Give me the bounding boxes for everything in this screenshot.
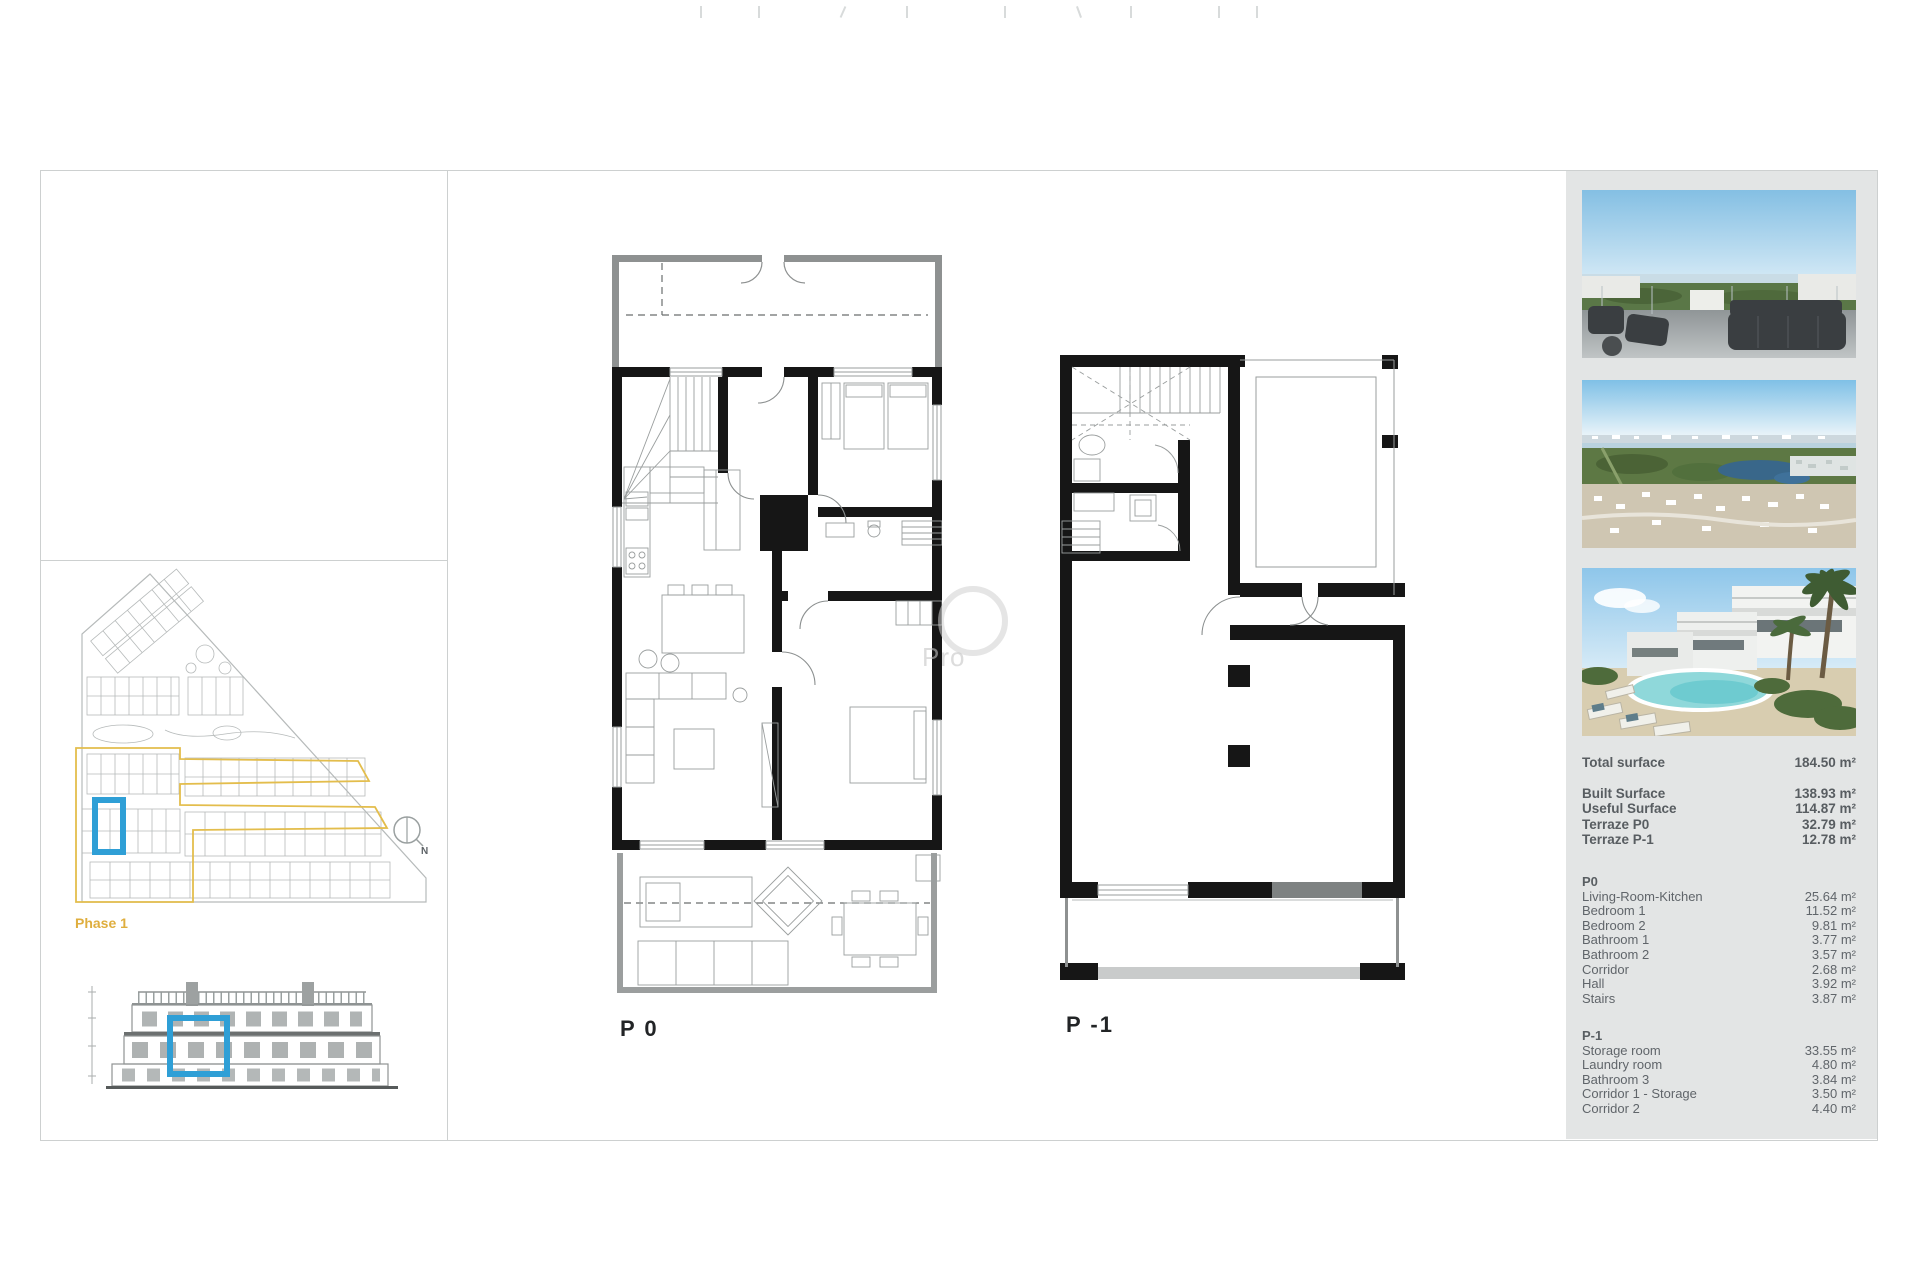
- row-value: 4.40 m²: [1812, 1102, 1856, 1117]
- row-label: Useful Surface: [1582, 801, 1677, 817]
- row-label: Built Surface: [1582, 786, 1665, 802]
- area-section-p1: P-1 Storage room 33.55 m² Laundry room 4…: [1582, 1029, 1856, 1117]
- p1-bathroom3: [1074, 435, 1178, 481]
- row-label: Bathroom 1: [1582, 933, 1649, 948]
- building-cluster-diagonal: [91, 569, 204, 673]
- row-value: 33.55 m²: [1805, 1044, 1856, 1059]
- photo-aerial-view: [1582, 380, 1856, 548]
- compass-label: N: [421, 846, 428, 857]
- row-value: 12.78 m²: [1802, 832, 1856, 848]
- row-label: Bathroom 3: [1582, 1073, 1649, 1088]
- pool: [1626, 668, 1774, 712]
- row-label: Terraze P-1: [1582, 832, 1654, 848]
- row-value: 3.77 m²: [1812, 933, 1856, 948]
- courtyard-shapes: [186, 645, 231, 674]
- p0-label: P 0: [620, 1016, 659, 1042]
- floor-plan-p0: [612, 255, 942, 997]
- row-label: Bathroom 2: [1582, 948, 1649, 963]
- row-value: 3.92 m²: [1812, 977, 1856, 992]
- row-label: Total surface: [1582, 755, 1665, 771]
- p1-stairs-dashed: [1072, 367, 1190, 440]
- p1-terrace: [1065, 898, 1399, 979]
- section-title: P0: [1582, 875, 1856, 890]
- summary-row: Built Surface 138.93 m²: [1582, 786, 1856, 802]
- row-value: 3.50 m²: [1812, 1087, 1856, 1102]
- left-box-divider: [40, 560, 448, 561]
- summary-total-row: Total surface 184.50 m²: [1582, 755, 1856, 771]
- photo-villas-pool: [1582, 568, 1856, 736]
- area-row: Corridor 1 - Storage 3.50 m²: [1582, 1087, 1856, 1102]
- row-label: Corridor: [1582, 963, 1629, 978]
- phase-label: Phase 1: [75, 915, 128, 931]
- row-value: 184.50 m²: [1794, 755, 1856, 771]
- p0-walls: [612, 367, 942, 850]
- aerial-view-illustration: [1582, 380, 1856, 548]
- area-row: Corridor 2 4.40 m²: [1582, 1102, 1856, 1117]
- row-value: 4.80 m²: [1812, 1058, 1856, 1073]
- site-plan-drawing: N Phase 1: [55, 562, 445, 947]
- row-label: Corridor 1 - Storage: [1582, 1087, 1697, 1102]
- p0-entry-door-arcs: [741, 262, 805, 283]
- area-row: Bathroom 1 3.77 m²: [1582, 933, 1856, 948]
- p0-bedroom2: [762, 601, 942, 807]
- row-value: 2.68 m²: [1812, 963, 1856, 978]
- p1-gray-wall-segment: [1272, 882, 1362, 898]
- row-value: 3.84 m²: [1812, 1073, 1856, 1088]
- area-row: Stairs 3.87 m²: [1582, 992, 1856, 1007]
- area-row: Bedroom 1 11.52 m²: [1582, 904, 1856, 919]
- p1-void-outline: [1240, 360, 1394, 595]
- summary-row: Useful Surface 114.87 m²: [1582, 801, 1856, 817]
- column-divider: [447, 170, 448, 1140]
- row-value: 3.87 m²: [1812, 992, 1856, 1007]
- area-row: Bathroom 3 3.84 m²: [1582, 1073, 1856, 1088]
- p1-stairs: [1072, 367, 1220, 413]
- row-label: Stairs: [1582, 992, 1615, 1007]
- row-value: 32.79 m²: [1802, 817, 1856, 833]
- highlighted-unit-marker: [95, 800, 123, 852]
- area-row: Bathroom 2 3.57 m²: [1582, 948, 1856, 963]
- floor-plan-p1: [1060, 355, 1405, 980]
- area-section-p0: P0 Living-Room-Kitchen 25.64 m² Bedroom …: [1582, 875, 1856, 1006]
- p0-bathroom2: [826, 521, 942, 545]
- row-value: 25.64 m²: [1805, 890, 1856, 905]
- row-label: Living-Room-Kitchen: [1582, 890, 1703, 905]
- row-value: 11.52 m²: [1806, 904, 1856, 919]
- row-value: 3.57 m²: [1812, 948, 1856, 963]
- p0-living-room: [626, 673, 747, 783]
- plan-sheet-page: { "sheet": { "plan_labels": { "p0": "P 0…: [0, 0, 1920, 1280]
- compass-north-icon: N: [394, 817, 428, 857]
- summary-row: Terraze P0 32.79 m²: [1582, 817, 1856, 833]
- p0-bottom-terrace-walls: [617, 853, 937, 993]
- crop-tick: [1076, 6, 1082, 18]
- row-label: Storage room: [1582, 1044, 1661, 1059]
- p1-laundry: [1062, 493, 1180, 553]
- crop-tick: [906, 6, 908, 18]
- info-panel: Total surface 184.50 m² Built Surface 13…: [1566, 171, 1877, 1139]
- p0-terrace-dashed-line: [626, 263, 928, 315]
- row-value: 138.93 m²: [1794, 786, 1856, 802]
- row-label: Laundry room: [1582, 1058, 1662, 1073]
- area-row: Hall 3.92 m²: [1582, 977, 1856, 992]
- crop-tick: [1130, 6, 1132, 18]
- crop-tick: [758, 6, 760, 18]
- section-title: P-1: [1582, 1029, 1856, 1044]
- crop-tick: [700, 6, 702, 18]
- elevation-drawing: [88, 982, 398, 1089]
- photo-rooftop-terrace: [1582, 190, 1856, 358]
- area-row: Living-Room-Kitchen 25.64 m²: [1582, 890, 1856, 905]
- row-label: Corridor 2: [1582, 1102, 1640, 1117]
- row-value: 114.87 m²: [1795, 801, 1856, 817]
- row-value: 9.81 m²: [1812, 919, 1856, 934]
- p1-label: P -1: [1066, 1012, 1114, 1038]
- villas-pool-illustration: [1582, 568, 1856, 736]
- surface-summary: Total surface 184.50 m² Built Surface 13…: [1582, 755, 1856, 848]
- area-row: Corridor 2.68 m²: [1582, 963, 1856, 978]
- area-row: Laundry room 4.80 m²: [1582, 1058, 1856, 1073]
- p0-bedroom1: [822, 383, 928, 449]
- p0-terrace-furniture: [638, 855, 940, 985]
- crop-tick: [1256, 6, 1258, 18]
- area-row: Bedroom 2 9.81 m²: [1582, 919, 1856, 934]
- crop-tick: [1218, 6, 1220, 18]
- crop-tick: [840, 6, 847, 18]
- row-label: Hall: [1582, 977, 1604, 992]
- area-row: Storage room 33.55 m²: [1582, 1044, 1856, 1059]
- row-label: Terraze P0: [1582, 817, 1649, 833]
- crop-tick: [1004, 6, 1006, 18]
- summary-row: Terraze P-1 12.78 m²: [1582, 832, 1856, 848]
- rooftop-terrace-illustration: [1582, 190, 1856, 358]
- row-label: Bedroom 1: [1582, 904, 1646, 919]
- building-elevation: [72, 952, 422, 1112]
- row-label: Bedroom 2: [1582, 919, 1646, 934]
